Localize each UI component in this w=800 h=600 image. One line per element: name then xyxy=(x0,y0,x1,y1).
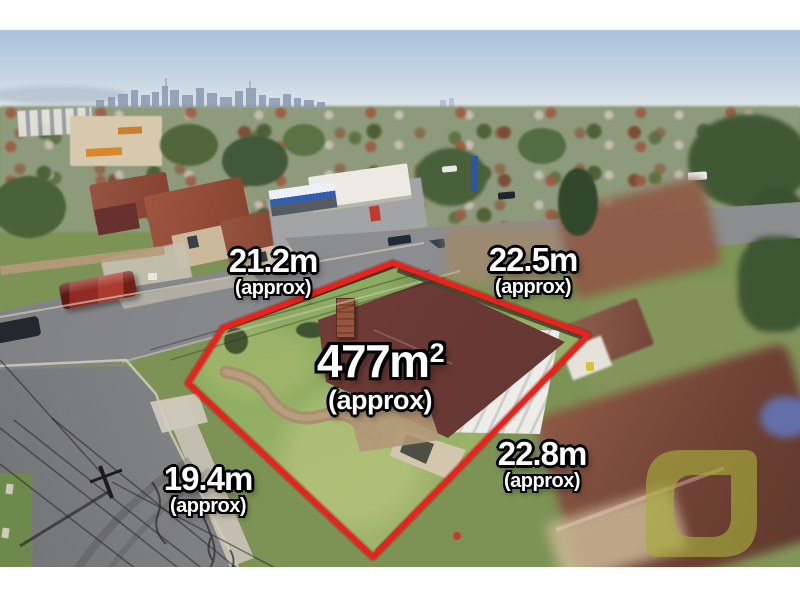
measurement-label-north-west: 21.2m (approx) xyxy=(229,245,318,298)
measurement-value: 22.8m xyxy=(498,438,587,469)
measurement-label-south-west: 19.4m (approx) xyxy=(164,463,253,516)
aerial-drone-photo: 21.2m (approx) 22.5m (approx) 477m2 (app… xyxy=(0,30,800,567)
measurement-qualifier: (approx) xyxy=(229,279,318,298)
yellow-bin xyxy=(586,362,594,371)
real-estate-aerial-listing-image: 21.2m (approx) 22.5m (approx) 477m2 (app… xyxy=(0,0,800,600)
shop-sign xyxy=(118,126,142,134)
petrol-station-bin xyxy=(369,205,381,221)
measurement-value: 22.5m xyxy=(489,244,578,275)
price-board-sign xyxy=(471,156,478,192)
measurement-qualifier: (approx) xyxy=(164,497,253,516)
letterbox xyxy=(148,273,157,280)
conifer-tree xyxy=(558,168,598,236)
tree xyxy=(283,124,325,156)
shrub xyxy=(224,328,248,354)
area-superscript: 2 xyxy=(430,338,444,368)
car xyxy=(498,191,516,199)
red-marker-dot xyxy=(453,532,461,540)
area-value: 477m2 xyxy=(317,340,443,384)
area-qualifier: (approx) xyxy=(317,388,443,414)
tree xyxy=(160,124,218,166)
grass-verge xyxy=(0,474,32,567)
measurement-label-north-east: 22.5m (approx) xyxy=(489,244,578,297)
area-label: 477m2 (approx) xyxy=(317,340,443,413)
commercial-building xyxy=(70,116,162,166)
fence-post xyxy=(1,528,9,539)
chimney xyxy=(336,298,355,338)
tree xyxy=(518,128,566,164)
measurement-value: 19.4m xyxy=(164,463,253,494)
tree xyxy=(738,236,800,332)
measurement-qualifier: (approx) xyxy=(498,472,587,491)
measurement-qualifier: (approx) xyxy=(489,278,578,297)
measurement-label-south-east: 22.8m (approx) xyxy=(498,438,587,491)
fence-post xyxy=(5,484,13,495)
measurement-value: 21.2m xyxy=(229,245,318,276)
window xyxy=(187,235,199,249)
